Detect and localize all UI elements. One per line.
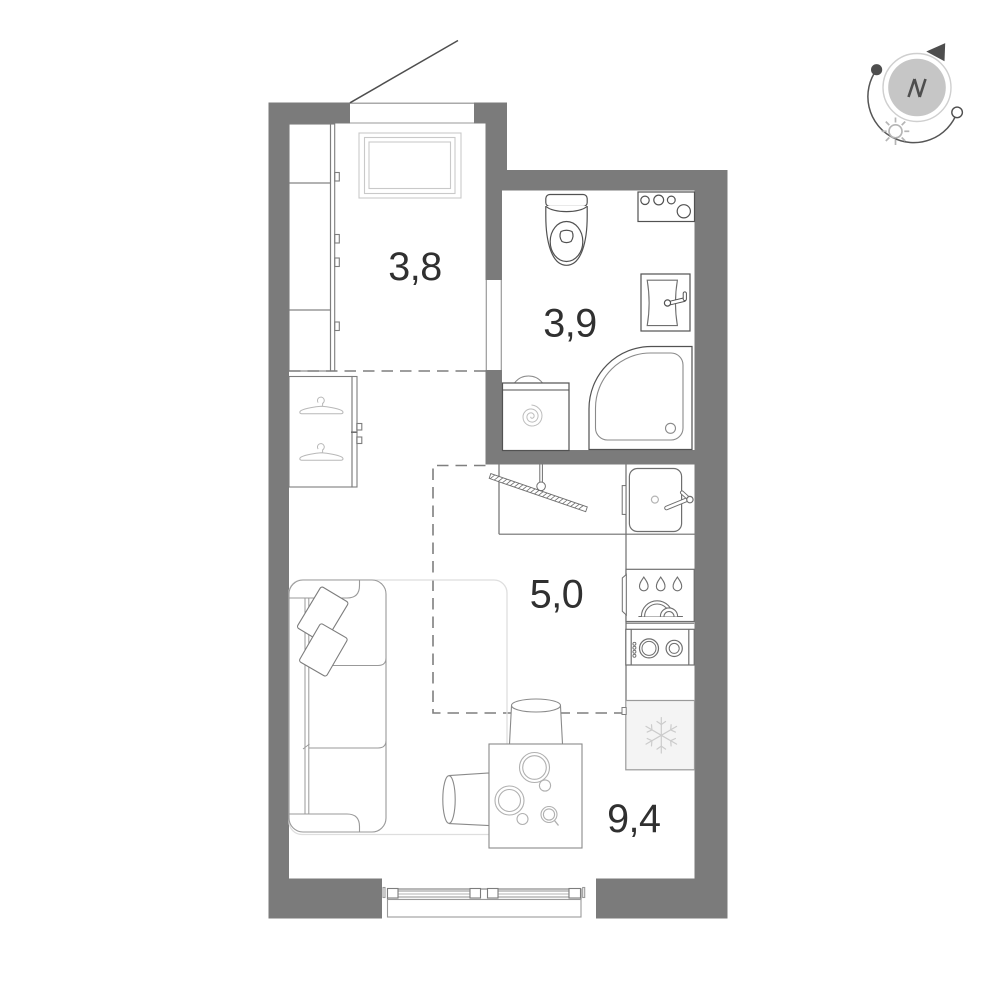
svg-text:9,4: 9,4 bbox=[607, 797, 660, 841]
svg-text:3,8: 3,8 bbox=[388, 245, 441, 289]
svg-text:5,0: 5,0 bbox=[530, 573, 583, 617]
svg-text:3,9: 3,9 bbox=[543, 302, 596, 346]
